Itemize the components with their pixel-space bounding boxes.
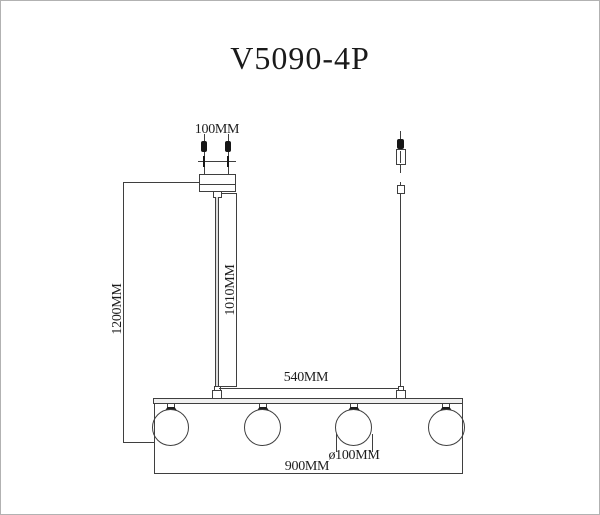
dim-label-bar-length: 900MM [277, 460, 337, 474]
ceiling-canopy [199, 174, 236, 192]
dim-tick-rod-top [221, 193, 237, 194]
mounting-screw-left-stem [204, 134, 205, 174]
suspension-wire [400, 194, 401, 389]
mounting-screw-left-icon [201, 141, 207, 152]
fixture-bar [153, 398, 463, 404]
dim-label-rod-length: 1010MM [224, 260, 238, 320]
dim-label-spacing: 540MM [276, 371, 336, 385]
globe-shade-2 [244, 409, 281, 446]
dim-tick-rod-bottom [218, 386, 237, 387]
wire-screw-icon [397, 139, 404, 149]
globe-shade-3 [335, 409, 372, 446]
dim-tick-canopy-left [203, 156, 205, 167]
ceiling-canopy-seam [199, 184, 236, 185]
wire-upper-tail [400, 165, 401, 173]
model-number-title: V5090-4P [1, 41, 599, 75]
dim-ext-overall-drop-top [123, 182, 199, 183]
dim-label-canopy-width: 100MM [187, 123, 247, 137]
dim-ext-bar-right [462, 400, 463, 474]
wire-gripper [396, 149, 406, 165]
technical-drawing-canvas: V5090-4P 100MM 1010MM 1200MM 540MM [0, 0, 600, 515]
wire-adjuster-fitting [397, 185, 405, 194]
mounting-screw-right-stem [228, 134, 229, 174]
globe-shade-1 [152, 409, 189, 446]
dim-ext-overall-drop-bottom [123, 442, 155, 443]
globe-shade-4 [428, 409, 465, 446]
wire-gripper-cable [400, 151, 401, 163]
dim-label-overall-drop: 1200MM [111, 279, 125, 339]
dim-ext-bar-left [154, 403, 155, 474]
dim-line-spacing [219, 388, 399, 389]
ceiling-down-rod [215, 197, 219, 388]
mounting-screw-right-icon [225, 141, 231, 152]
dim-tick-canopy-right [227, 156, 229, 167]
